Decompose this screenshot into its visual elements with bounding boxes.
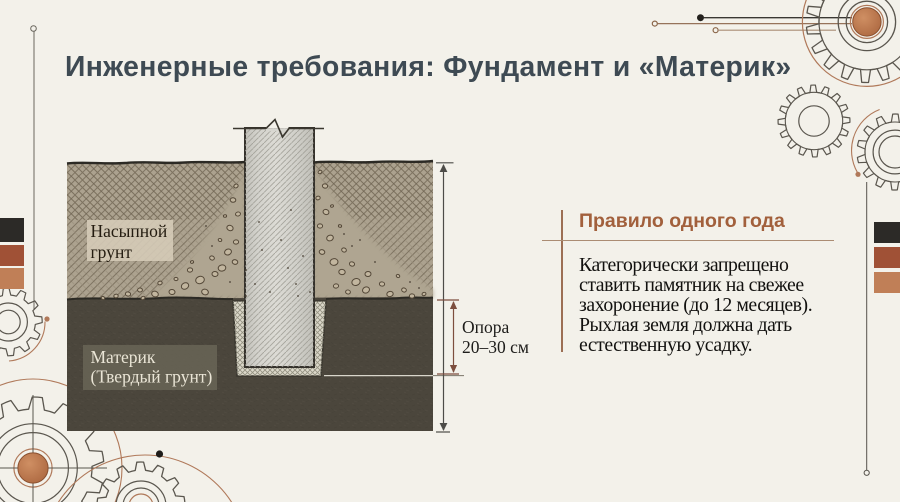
svg-text:20–30 см: 20–30 см bbox=[462, 337, 529, 357]
svg-text:Насыпной: Насыпной bbox=[91, 221, 168, 241]
svg-text:Опора: Опора bbox=[462, 317, 510, 337]
svg-text:(Твердый грунт): (Твердый грунт) bbox=[91, 367, 213, 387]
svg-text:Материк: Материк bbox=[91, 347, 156, 367]
svg-text:грунт: грунт bbox=[91, 242, 133, 262]
